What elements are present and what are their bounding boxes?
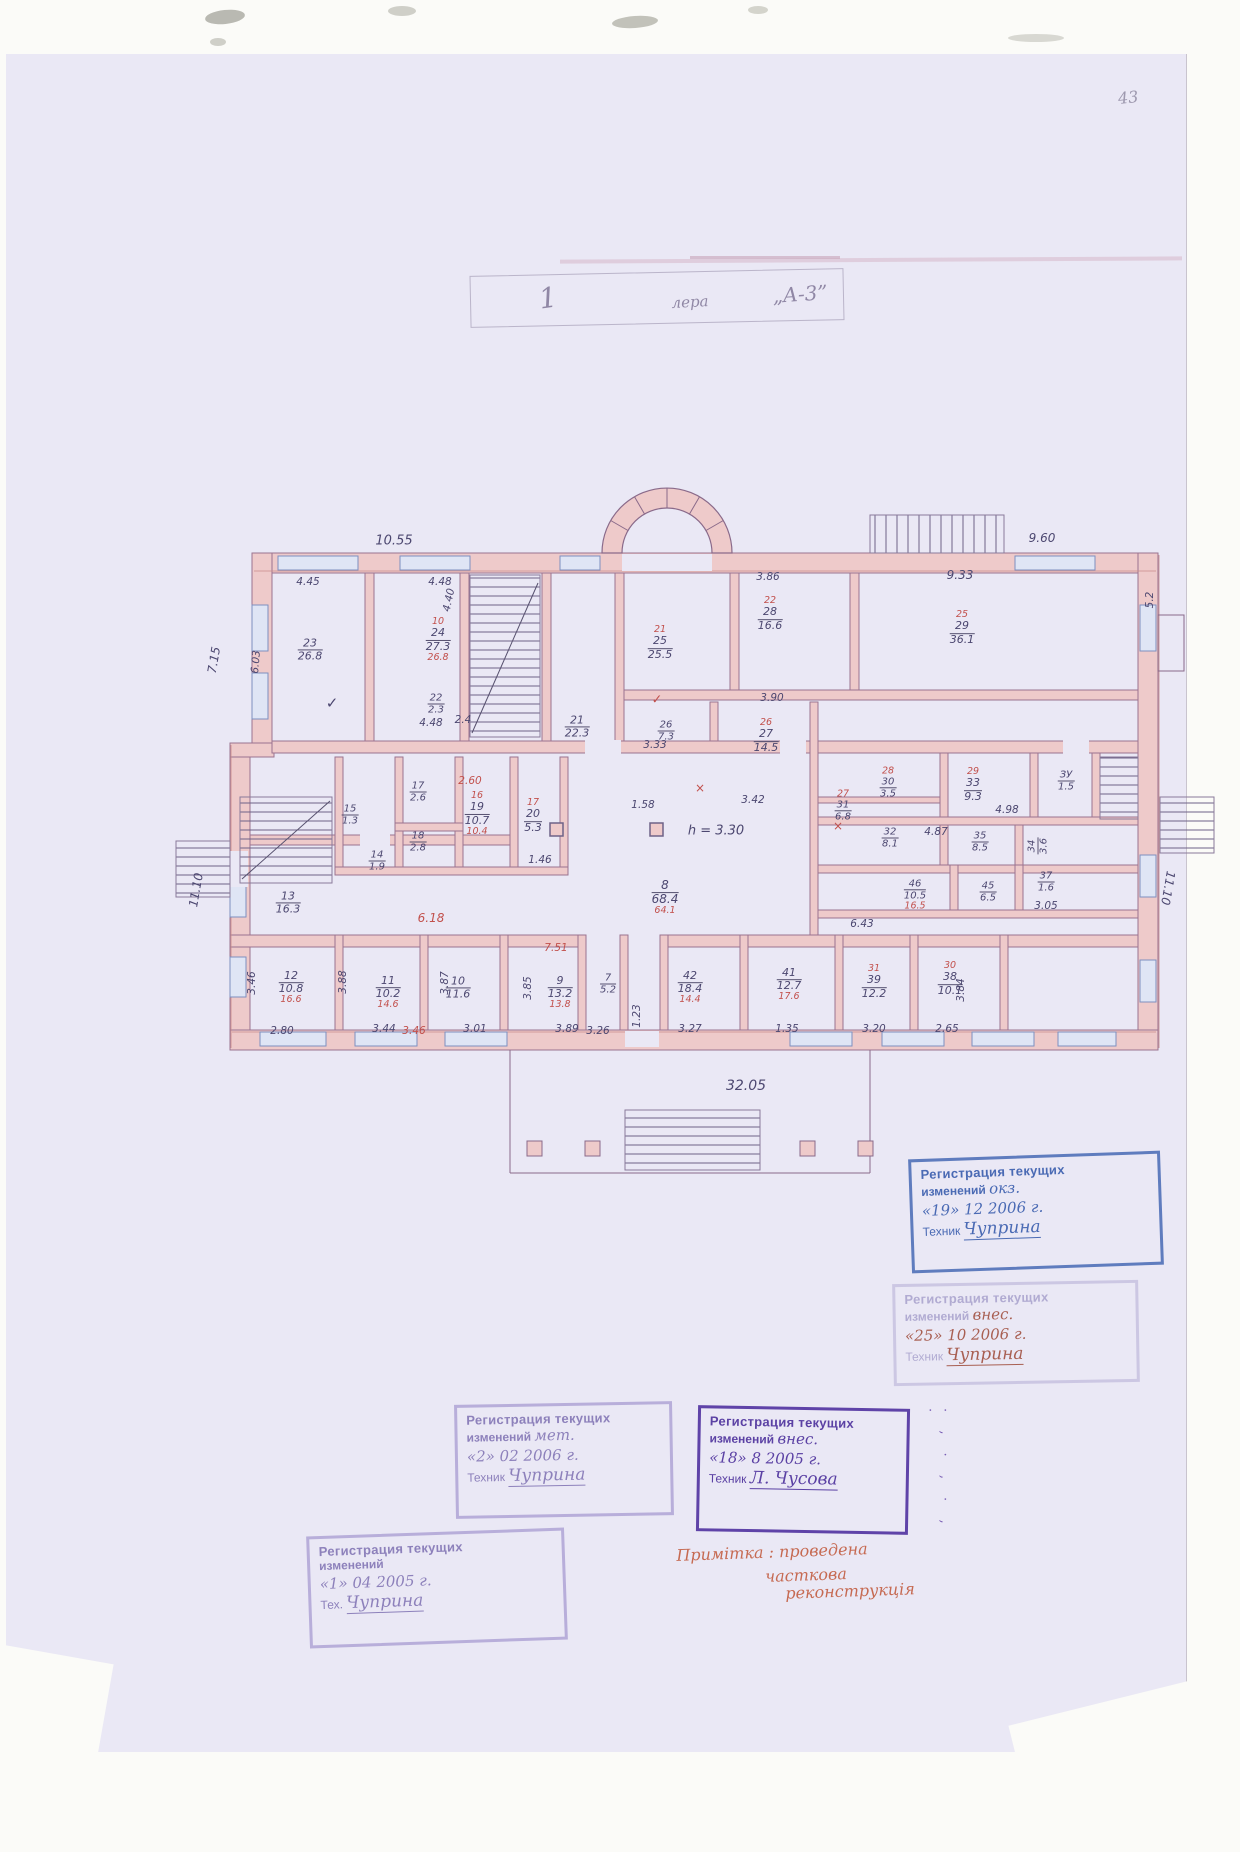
room-label: 8 68.4 64.1 — [652, 879, 679, 917]
stamp-signature: Чуприна — [946, 1344, 1023, 1366]
registration-stamp: Регистрация текущих изменений «1» 04 200… — [306, 1528, 568, 1649]
dimension-label: h = 3.30 — [688, 824, 744, 839]
room-label: 7 5.2 — [600, 973, 616, 996]
dimension-label: × — [833, 819, 843, 833]
dimension-label: 10.55 — [375, 534, 412, 549]
room-label: 46 10.5 16.5 — [904, 878, 926, 911]
room-label: 25 29 36.1 — [950, 610, 975, 646]
room-label: 41 12.7 17.6 — [777, 967, 802, 1003]
dimension-label: 3.33 — [643, 739, 666, 751]
dimension-label: 9.33 — [947, 568, 974, 582]
room-label: 22 2.3 — [428, 693, 445, 716]
stamp-margin-marks: · ‚ · ‚ · ‚ · — [922, 1408, 952, 1538]
dimension-label: 32.05 — [726, 1078, 766, 1094]
scan-smudge — [1008, 34, 1064, 42]
room-label: 14 1.9 — [369, 850, 386, 873]
portico-column — [527, 1141, 542, 1156]
scan-smudge — [204, 8, 245, 26]
dimension-label: 3.26 — [586, 1025, 609, 1037]
dimension-label: 3.01 — [463, 1023, 486, 1035]
page-number: 43 — [1117, 87, 1139, 108]
room-label: 12 10.8 16.6 — [279, 970, 304, 1006]
room-label: 16 19 10.7 10.4 — [465, 791, 490, 837]
dimension-label: 6.03 — [249, 650, 263, 674]
room-label: 17 2.6 — [410, 781, 427, 804]
room-label: 15 1.3 — [342, 804, 359, 827]
dimension-label: 1.58 — [631, 799, 654, 811]
right-wing-staircase — [1100, 757, 1138, 819]
room-label: 34 3.6 — [1027, 838, 1050, 855]
dimension-label: 3.20 — [862, 1023, 885, 1035]
room-label: 42 18.4 14.4 — [678, 970, 703, 1006]
stamp-role: Техник Чуприна — [467, 1463, 661, 1486]
dimension-label: × — [695, 781, 705, 795]
room-label: 28 30 3.5 — [880, 766, 897, 799]
dimension-label: 5.2 — [1144, 592, 1156, 609]
room-label: 23 26.8 — [298, 637, 323, 662]
scan-streak — [690, 256, 840, 259]
stamp-signature: Чуприна — [346, 1590, 424, 1614]
dimension-label: 3.27 — [678, 1023, 701, 1035]
dimension-label: 3.88 — [337, 970, 349, 993]
dimension-label: 6.43 — [850, 918, 873, 930]
room-label: 21 25 25.5 — [648, 625, 673, 661]
dimension-label: 3.89 — [555, 1023, 578, 1035]
dimension-label: 1.23 — [631, 1004, 643, 1027]
dimension-label: 2.65 — [935, 1023, 958, 1035]
dimension-label: 3.05 — [1034, 900, 1057, 912]
stamp-subheader: изменений мет. — [466, 1424, 660, 1445]
scan-smudge — [210, 38, 226, 46]
dimension-label: 9.60 — [1029, 531, 1056, 545]
dimension-label: 1.35 — [775, 1023, 798, 1035]
scan-smudge — [388, 6, 416, 16]
room-label: 13 16.3 — [276, 890, 301, 915]
room-label: ЗУ 1.5 — [1058, 770, 1075, 793]
portico-steps — [625, 1110, 760, 1170]
room-label: 45 6.5 — [980, 881, 997, 904]
scanned-floorplan-page: { "page": {"number": "43"}, "title": {"f… — [0, 0, 1240, 1752]
portico-column — [858, 1141, 873, 1156]
title-fragment: лера — [671, 292, 709, 312]
dimension-label: 2.4 — [455, 714, 472, 726]
dimension-label: 3.85 — [522, 976, 534, 999]
dimension-label: 3.42 — [741, 794, 764, 806]
scan-smudge — [748, 6, 768, 14]
stamp-subheader: изменений внес. — [709, 1428, 897, 1449]
registration-stamp: Регистрация текущих изменений окз. «19» … — [908, 1151, 1164, 1274]
dimension-label: 2.60 — [458, 775, 481, 787]
dimension-label: 3.46 — [402, 1025, 425, 1037]
room-label: 18 2.8 — [410, 831, 427, 854]
room-label: 31 39 12.2 — [862, 964, 887, 1000]
stamp-role: Техник Чуприна — [905, 1342, 1127, 1366]
portico-column — [800, 1141, 815, 1156]
dimension-label: 4.87 — [924, 826, 947, 838]
dimension-label: 4.48 — [419, 717, 442, 729]
entrance-steps-top-right — [870, 515, 1004, 553]
stamp-signature: Л. Чусова — [750, 1468, 838, 1491]
torn-corner — [0, 1638, 114, 1831]
registration-stamp: Регистрация текущих изменений внес. «18»… — [696, 1405, 910, 1535]
dimension-label: 3.90 — [760, 692, 783, 704]
dimension-label: 3.46 — [246, 971, 258, 994]
dimension-label: 3.86 — [756, 571, 779, 583]
room-label: 29 33 9.3 — [964, 767, 982, 803]
stamp-subheader: изменений внес. — [905, 1303, 1127, 1325]
dimension-label: 2.80 — [270, 1025, 293, 1037]
room-label: 21 22.3 — [565, 714, 590, 739]
stamp-signature: Чуприна — [963, 1217, 1041, 1241]
room-label: 27 31 6.8 — [835, 789, 852, 822]
stamp-role: Техник Л. Чусова — [709, 1467, 897, 1490]
right-balcony — [1158, 615, 1184, 671]
scan-smudge — [612, 14, 659, 29]
room-label: 26 27 14.5 — [754, 718, 779, 754]
dimension-label: 3.87 — [439, 971, 451, 994]
dimension-label: ✓ — [326, 694, 339, 712]
dimension-label: 3.84 — [955, 978, 967, 1001]
room-label: 11 10.2 14.6 — [376, 975, 401, 1011]
portico-column — [585, 1141, 600, 1156]
floor-plan — [170, 485, 1230, 1205]
registration-stamp: Регистрация текущих изменений внес. «25»… — [892, 1280, 1140, 1386]
staircases — [176, 515, 1214, 1170]
registration-stamp: Регистрация текущих изменений мет. «2» 0… — [454, 1401, 674, 1519]
stamp-date: «18» 8 2005 г. — [709, 1448, 897, 1469]
stamp-signature: Чуприна — [508, 1465, 585, 1487]
dimension-label: 4.48 — [428, 576, 451, 588]
dimension-label: ✓ — [652, 693, 663, 708]
title-fragment: „А-3” — [772, 280, 829, 308]
right-exterior-steps — [1160, 797, 1214, 853]
dimension-label: 7.51 — [544, 942, 567, 954]
stamp-date: «2» 02 2006 г. — [467, 1444, 661, 1465]
room-label: 37 1.6 — [1038, 871, 1055, 894]
dimension-label: 4.98 — [995, 804, 1018, 816]
dimension-label: 3.44 — [372, 1023, 395, 1035]
room-label: 17 20 5.3 — [524, 798, 542, 834]
room-label: 9 13.2 13.8 — [548, 975, 573, 1011]
dimension-label: 1.46 — [528, 854, 551, 866]
dimension-label: 6.18 — [418, 911, 445, 925]
room-label: 10 24 27.3 26.8 — [426, 617, 451, 663]
dimension-label: 4.45 — [296, 576, 319, 588]
room-label: 35 8.5 — [972, 831, 989, 854]
room-label: 32 8.1 — [882, 827, 899, 850]
room-label: 22 28 16.6 — [758, 596, 783, 632]
